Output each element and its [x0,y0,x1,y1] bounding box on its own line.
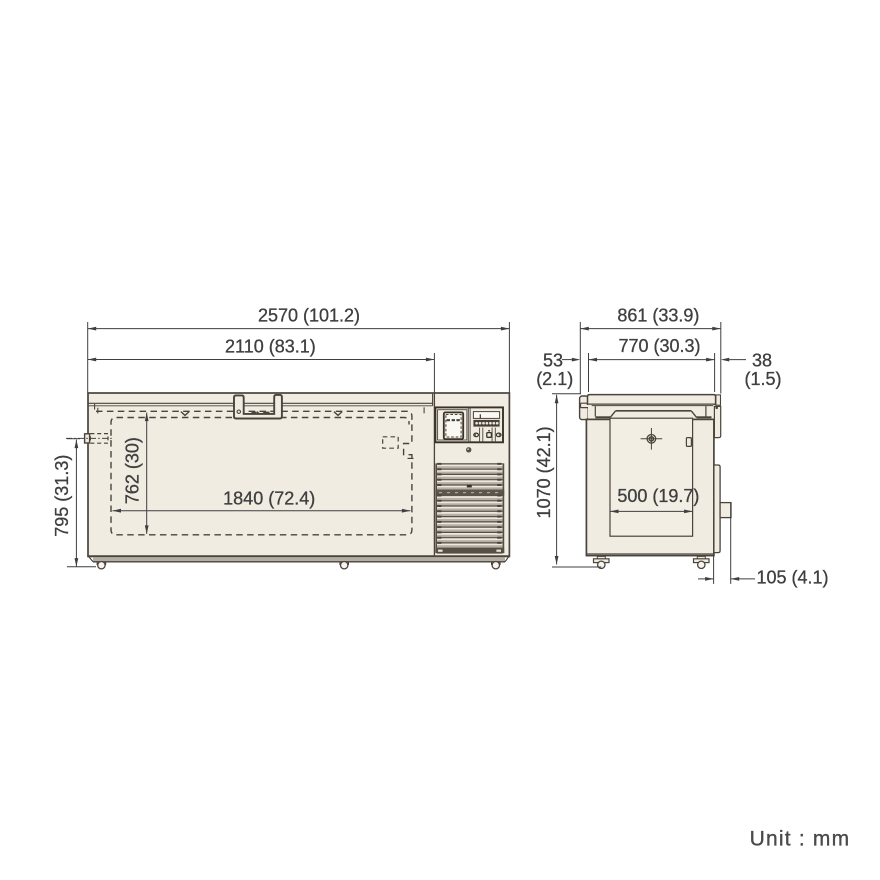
svg-text:Unit : mm: Unit : mm [750,828,851,851]
svg-text:1070 (42.1): 1070 (42.1) [534,426,554,518]
svg-text:53: 53 [543,350,563,370]
svg-text:770 (30.3): 770 (30.3) [618,336,700,356]
svg-text:(1.5): (1.5) [744,369,781,389]
svg-text:762 (30): 762 (30) [123,437,143,504]
svg-text:2110 (83.1): 2110 (83.1) [225,337,316,357]
svg-text:105 (4.1): 105 (4.1) [757,568,829,588]
svg-text:38: 38 [752,351,772,371]
svg-text:861 (33.9): 861 (33.9) [617,306,699,326]
svg-text:500 (19.7): 500 (19.7) [617,486,699,506]
svg-text:2570 (101.2): 2570 (101.2) [258,306,360,326]
svg-text:795 (31.3): 795 (31.3) [52,455,72,537]
svg-text:1840 (72.4): 1840 (72.4) [223,489,315,509]
svg-text:(2.1): (2.1) [536,369,573,389]
